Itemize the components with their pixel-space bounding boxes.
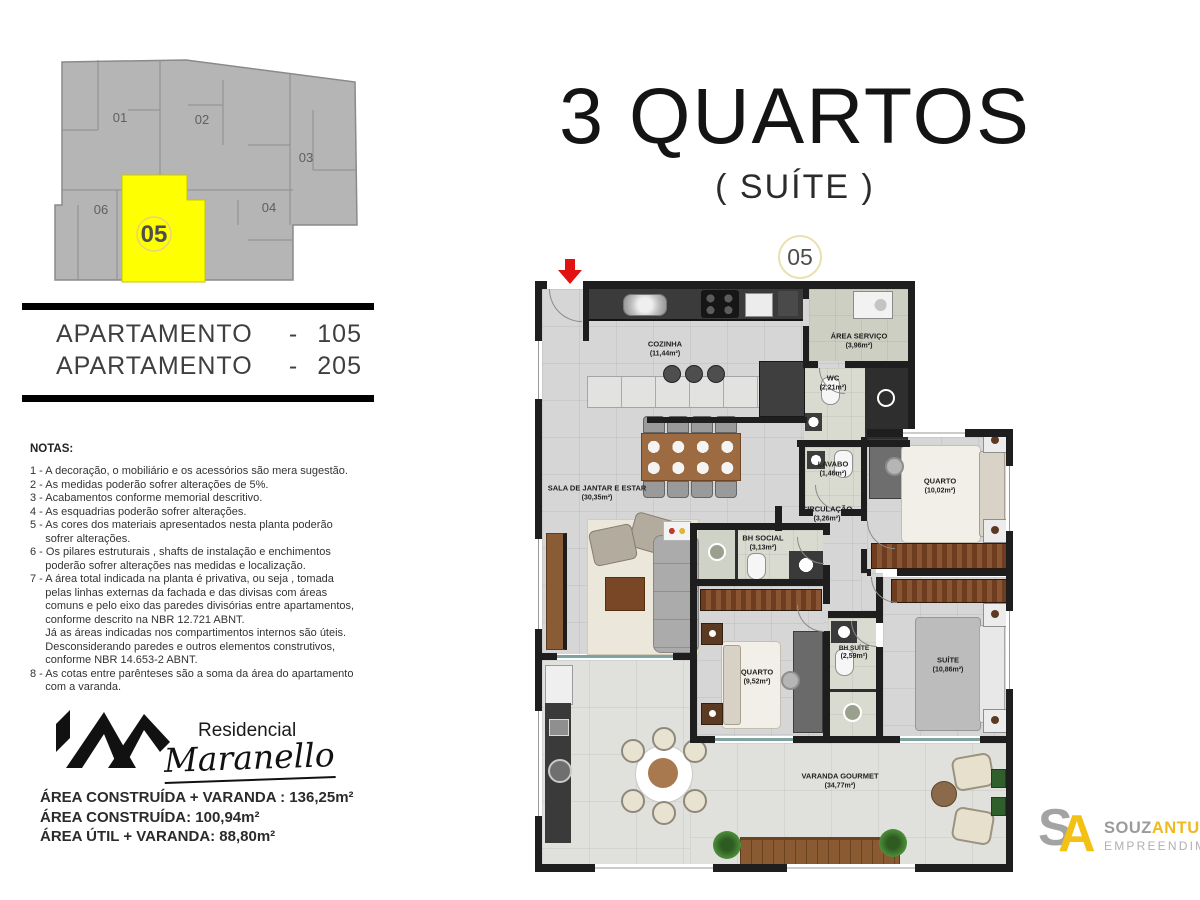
- wall: [823, 523, 830, 535]
- wall: [823, 565, 830, 586]
- sa-monogram-icon: S A: [1038, 798, 1100, 860]
- balcony-chair: [652, 727, 676, 751]
- wall: [867, 569, 871, 576]
- wall: [845, 361, 915, 368]
- notes-heading: NOTAS:: [30, 443, 73, 455]
- window: [1006, 466, 1013, 531]
- wall: [793, 736, 900, 743]
- unit-label: 02: [195, 112, 209, 127]
- wall: [980, 736, 1013, 743]
- room-label-area-servico: ÁREA SERVIÇO(3,96m²): [831, 331, 888, 350]
- balcony-armchair: [950, 806, 995, 846]
- wall: [876, 647, 883, 736]
- wc-sink: [805, 413, 822, 431]
- notes-body: 1 - A decoração, o mobiliário e os acess…: [30, 465, 354, 695]
- window: [903, 429, 965, 437]
- floor-plan: COZINHA(11,44m²) ÁREA SERVIÇO(3,96m²) WC…: [535, 281, 1013, 872]
- window: [787, 864, 915, 872]
- wall: [690, 523, 830, 530]
- wall: [823, 631, 830, 743]
- shower-head-icon: [708, 543, 726, 561]
- dining-chair: [667, 481, 689, 498]
- wall: [797, 440, 910, 447]
- nightstand: [701, 623, 723, 645]
- wall: [823, 586, 830, 604]
- glass-slider: [900, 738, 980, 741]
- bedroom2-pillows: [723, 645, 741, 725]
- wall: [535, 653, 557, 660]
- room-label-sala: SALA DE JANTAR E ESTAR(30,35m²): [537, 483, 657, 502]
- kitchen-island: [759, 361, 805, 417]
- room-label-bh-suite: BH SUÍTE(2,59m²): [839, 645, 869, 661]
- unit-number-badge: 05: [778, 235, 822, 279]
- nightstand: [983, 603, 1007, 627]
- dining-chair: [715, 481, 737, 498]
- wall: [673, 653, 690, 660]
- planter: [991, 797, 1006, 816]
- shower-head-icon: [877, 389, 895, 407]
- tv-cabinet: [546, 533, 567, 650]
- shower-divider: [828, 689, 876, 692]
- page-subtitle: ( SUÍTE ): [535, 168, 1055, 207]
- unit-label: 04: [262, 200, 276, 215]
- window: [595, 864, 713, 872]
- wall: [775, 506, 782, 531]
- developer-subtitle: EMPREENDIMENTOS: [1104, 839, 1200, 853]
- apartment-row: APARTAMENTO - 105: [40, 318, 362, 350]
- cooktop: [701, 290, 739, 318]
- window: [1006, 611, 1013, 689]
- balcony-side-table: [931, 781, 957, 807]
- room-label-quarto1: QUARTO(10,02m²): [924, 476, 956, 495]
- wall: [583, 281, 915, 289]
- dining-chair: [691, 481, 713, 498]
- kitchen-appliance: [745, 293, 773, 317]
- divider-bar-top: [22, 303, 374, 310]
- wall: [897, 569, 1013, 576]
- room-label-wc: WC(2,21m²): [820, 373, 847, 392]
- room-label-cozinha: COZINHA(11,44m²): [648, 339, 682, 358]
- desk-chair: [781, 671, 800, 690]
- bench: [740, 837, 900, 865]
- wall: [803, 326, 809, 366]
- wall: [583, 289, 589, 341]
- residencial-maranello-logo: Residencial Maranello: [52, 698, 335, 781]
- brand-line2: Maranello: [163, 735, 335, 784]
- divider-bar-bottom: [22, 395, 374, 402]
- kitchen-cabinet: [778, 291, 798, 316]
- dining-table: [641, 433, 741, 481]
- kitchen-sink: [623, 294, 667, 316]
- nightstand: [701, 703, 723, 725]
- balcony-sink: [549, 719, 569, 736]
- wall: [690, 736, 715, 743]
- balcony-chair: [621, 789, 645, 813]
- wall: [690, 523, 697, 586]
- room-label-circulacao: CIRCULAÇÃO(3,26m²): [802, 504, 852, 523]
- plant: [713, 831, 741, 859]
- wall: [828, 611, 883, 618]
- unit-label: 03: [299, 150, 313, 165]
- balcony-chair: [652, 801, 676, 825]
- apartment-row: APARTAMENTO - 205: [40, 350, 362, 382]
- area-line: ÁREA CONSTRUÍDA: 100,94m²: [40, 808, 354, 828]
- grill: [548, 759, 572, 783]
- planter: [991, 769, 1006, 788]
- glass-slider: [557, 655, 673, 658]
- wall: [861, 437, 867, 521]
- window: [535, 341, 542, 399]
- wall: [690, 586, 697, 743]
- area-totals: ÁREA CONSTRUÍDA + VARANDA : 136,25m² ÁRE…: [40, 788, 354, 847]
- plant: [879, 829, 907, 857]
- balcony-table-top: [648, 758, 678, 788]
- bath-social-toilet: [747, 553, 766, 580]
- wall: [803, 361, 818, 368]
- glass-slider: [715, 738, 793, 741]
- stool: [663, 365, 681, 383]
- window: [535, 711, 542, 816]
- balcony-chair: [621, 739, 645, 763]
- nightstand: [983, 709, 1007, 733]
- suite-wardrobe: [891, 579, 1008, 603]
- building-key-plan: 01 02 03 04 05 06: [38, 50, 380, 292]
- shower-head-icon: [843, 703, 862, 722]
- stool: [685, 365, 703, 383]
- stool: [707, 365, 725, 383]
- wall: [690, 579, 830, 586]
- side-table: [663, 521, 691, 541]
- wall: [908, 281, 915, 437]
- coffee-table: [605, 577, 645, 611]
- room-label-bh-social: BH SOCIAL(3,13m²): [742, 533, 783, 552]
- washing-machine: [853, 291, 893, 319]
- wall: [647, 417, 807, 423]
- unit-label-highlighted: 05: [141, 221, 168, 248]
- developer-name-yellow: ANTUNES: [1152, 819, 1200, 837]
- page-title: 3 QUARTOS: [535, 70, 1055, 162]
- room-label-lavabo: LAVABO(1,46m²): [818, 459, 849, 478]
- unit-label: 01: [113, 110, 127, 125]
- room-label-varanda: VARANDA GOURMET(34,77m²): [801, 771, 878, 790]
- window: [535, 539, 542, 629]
- room-label-quarto2: QUARTO(9,52m²): [741, 667, 773, 686]
- wall: [803, 289, 809, 299]
- souzantunes-logo: S A SOUZANTUNES EMPREENDIMENTOS: [1038, 798, 1200, 860]
- developer-name-gray: SOUZ: [1104, 819, 1152, 837]
- room-label-suite: SUÍTE(10,86m²): [933, 655, 964, 674]
- balcony-armchair: [950, 752, 995, 792]
- area-line: ÁREA CONSTRUÍDA + VARANDA : 136,25m²: [40, 788, 354, 808]
- nightstand: [983, 519, 1007, 543]
- desk-chair: [885, 457, 904, 476]
- balcony-chair: [683, 789, 707, 813]
- apartment-list: APARTAMENTO - 105 APARTAMENTO - 205: [40, 318, 362, 382]
- balcony-counter-light: [545, 665, 573, 705]
- area-line: ÁREA ÚTIL + VARANDA: 88,80m²: [40, 827, 354, 847]
- roof-logo-icon: [52, 698, 170, 776]
- unit-label: 06: [94, 202, 108, 217]
- building-outline: [55, 60, 357, 280]
